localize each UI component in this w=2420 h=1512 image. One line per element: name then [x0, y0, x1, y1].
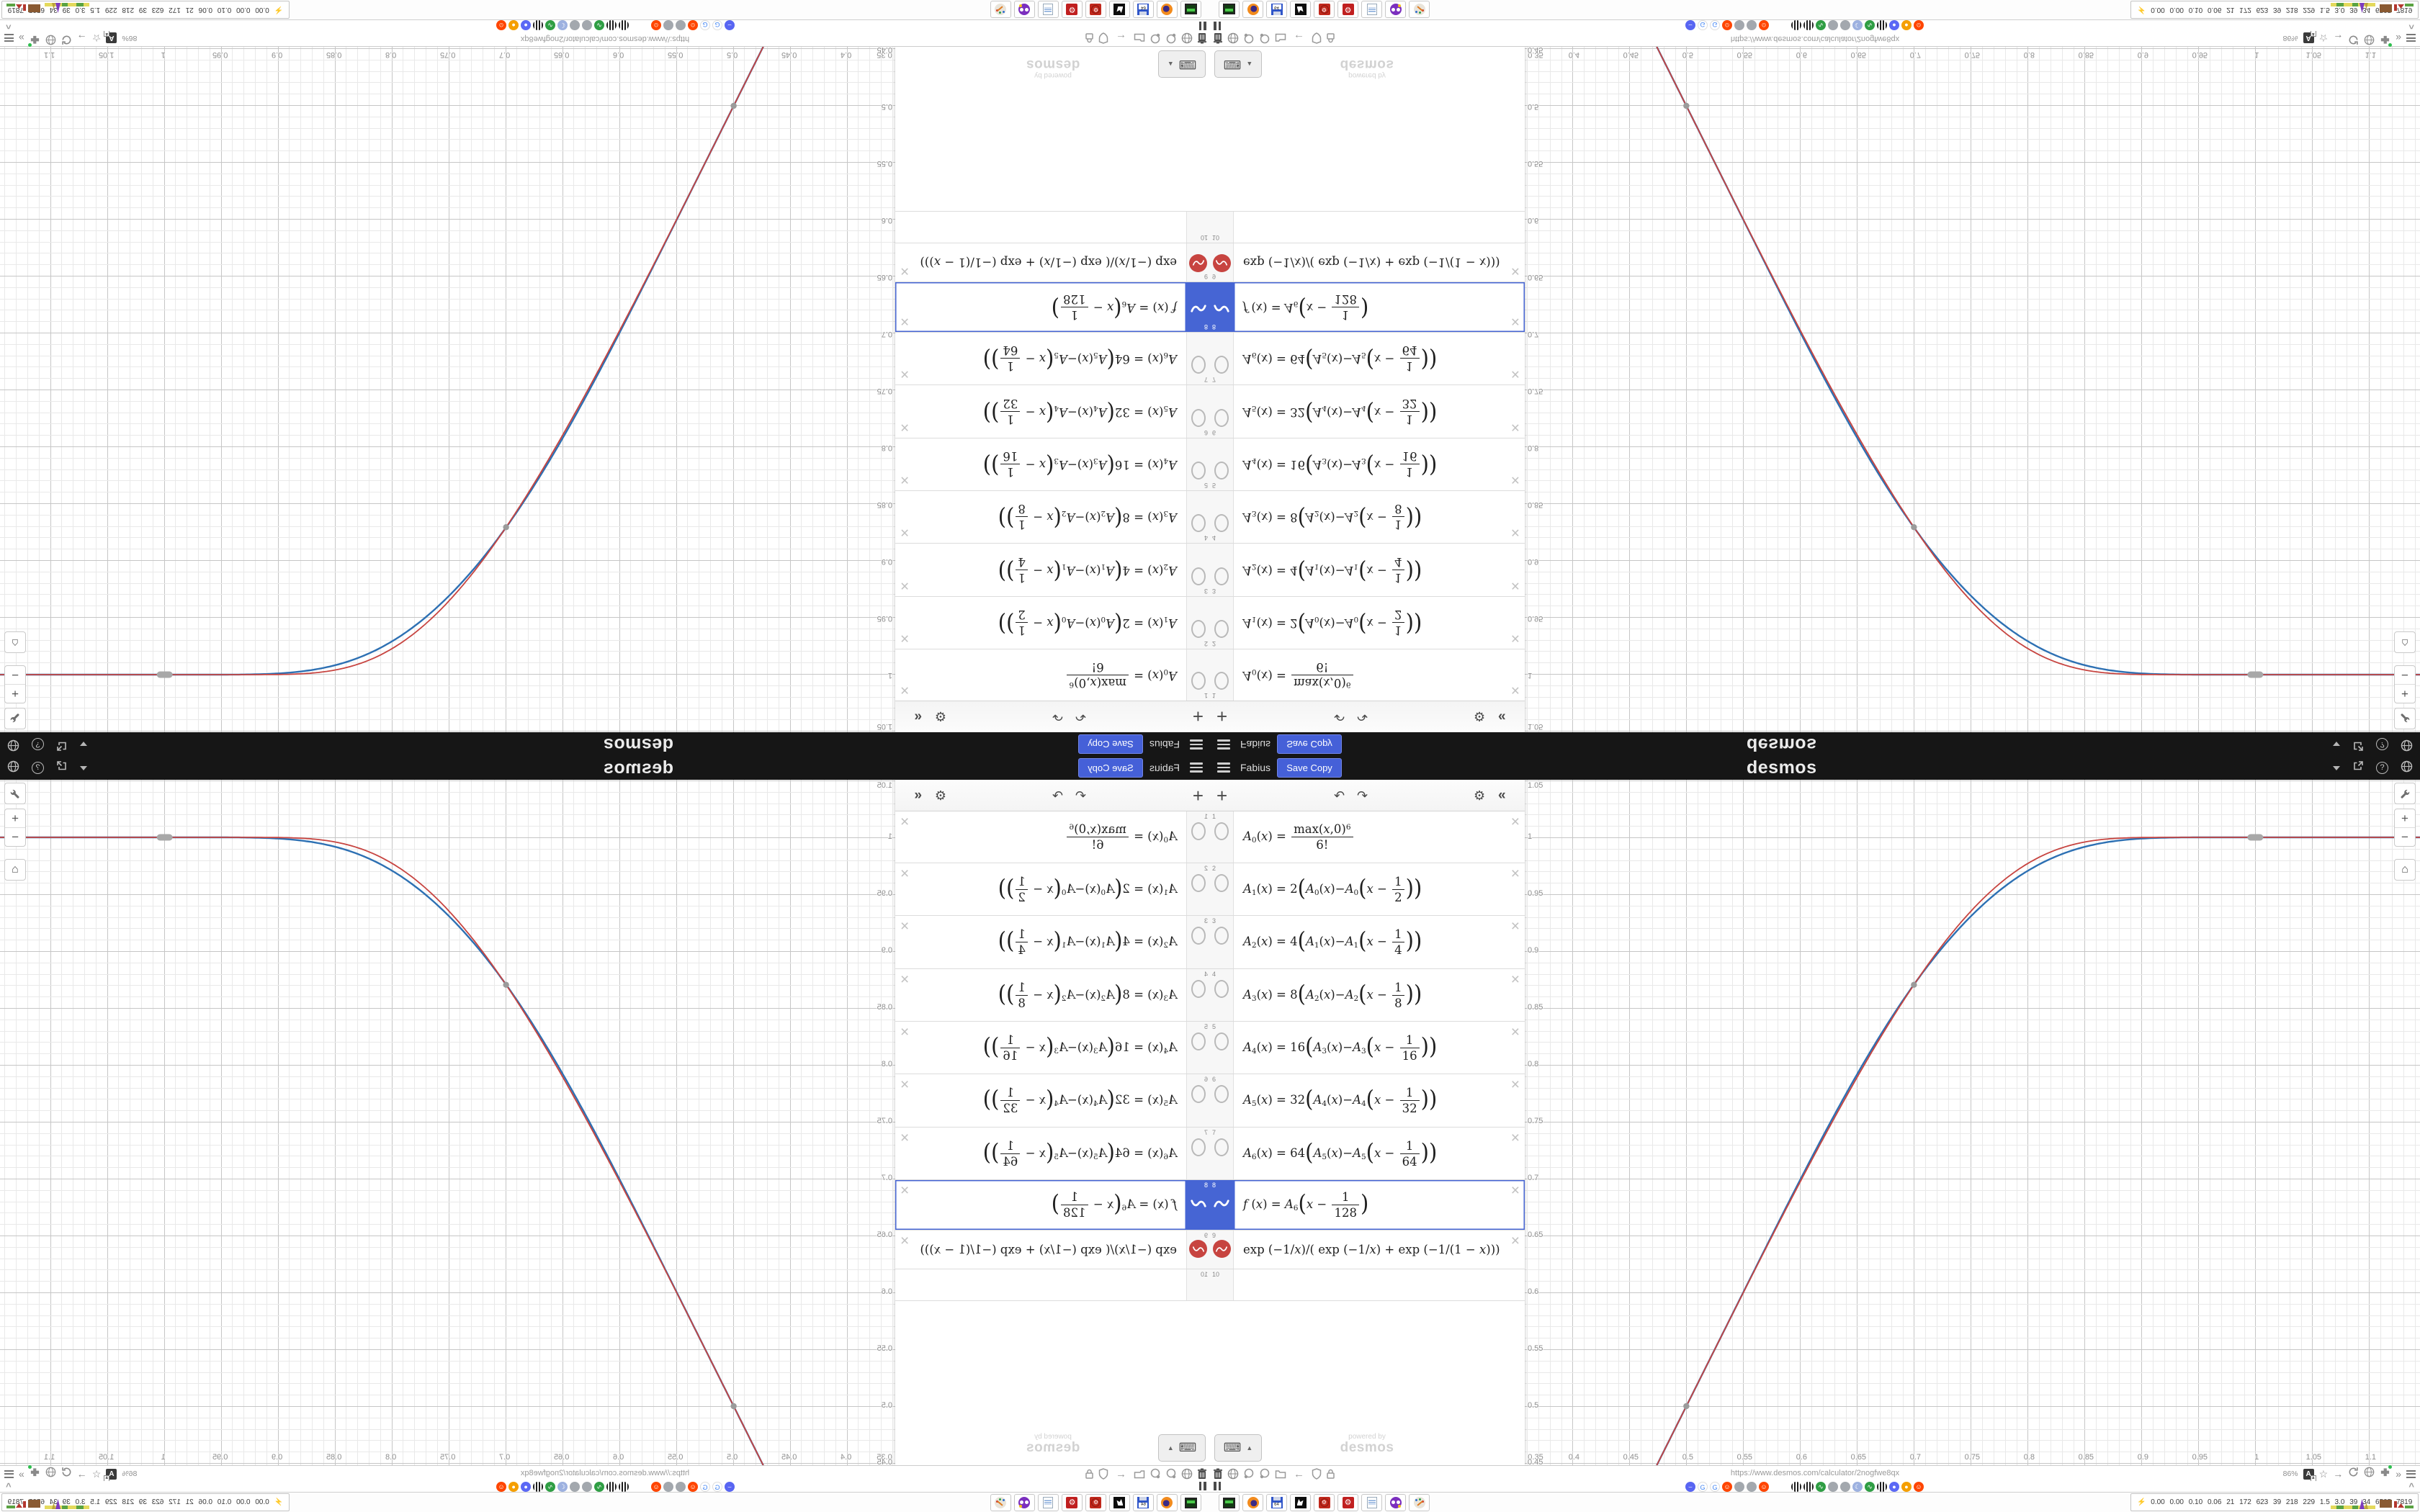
expression-row-2[interactable]: 2A1(x) = 2(A0(x)−A0(x − 12))×: [1210, 596, 1525, 649]
row-gutter[interactable]: 3: [1210, 544, 1234, 596]
expression-content[interactable]: A2(x) = 4(A1(x)−A1(x − 14))×: [1234, 916, 1525, 968]
taskbar-app-terminal[interactable]: [1180, 1494, 1201, 1511]
taskbar-app-red-emblem[interactable]: ⚙: [1314, 1494, 1335, 1511]
undo-icon[interactable]: ↶: [1334, 780, 1345, 811]
overflow-chevrons-icon[interactable]: »: [2396, 1469, 2401, 1479]
hidden-curve-toggle-icon[interactable]: [1214, 672, 1229, 690]
share-icon[interactable]: [56, 760, 68, 775]
page-zoom-level[interactable]: 86%: [2283, 34, 2298, 42]
row-gutter[interactable]: 7: [1210, 333, 1234, 384]
expression-row-2[interactable]: 2A1(x) = 2(A0(x)−A0(x − 12))×: [1210, 863, 1525, 916]
hidden-curve-toggle-icon[interactable]: [1191, 1138, 1206, 1156]
tab-favicon-animal[interactable]: [663, 1482, 673, 1492]
language-globe-icon[interactable]: [7, 760, 19, 776]
expression-content[interactable]: A3(x) = 8(A2(x)−A2(x − 18))×: [895, 969, 1186, 1021]
curve-fabius-approx[interactable]: [1646, 837, 2420, 1465]
expand-caret-icon[interactable]: ^: [2408, 1481, 2414, 1492]
reload-icon[interactable]: [2348, 31, 2359, 45]
add-expression-icon[interactable]: +: [1193, 780, 1204, 811]
graph-point[interactable]: [1683, 1403, 1689, 1409]
page-zoom-level[interactable]: 86%: [122, 1470, 137, 1478]
taskbar-app-black-cat[interactable]: [1109, 1494, 1130, 1511]
account-caret-icon[interactable]: [2333, 766, 2340, 770]
row-gutter[interactable]: 8: [1210, 282, 1234, 332]
tab-favicon-chat[interactable]: ●: [1889, 21, 1899, 31]
expression-row-5[interactable]: 5A4(x) = 16(A3(x)−A3(x − 116))×: [895, 438, 1210, 490]
tab-favicon-discord[interactable]: ⌣: [1685, 1482, 1695, 1492]
delete-expression-icon[interactable]: ×: [900, 420, 909, 435]
menu-hamburger-icon[interactable]: [1190, 762, 1203, 773]
delete-expression-icon[interactable]: ×: [900, 1233, 909, 1248]
expression-content[interactable]: [1234, 1269, 1525, 1300]
tab-favicon-google[interactable]: G: [700, 21, 710, 31]
help-icon[interactable]: ?: [32, 762, 44, 774]
expression-row-1[interactable]: 1A0(x) = max(x,0)66!×: [1210, 649, 1525, 701]
taskbar-app-black-cat[interactable]: [1290, 1494, 1311, 1511]
help-icon[interactable]: ?: [32, 738, 44, 750]
undo-icon[interactable]: ↶: [1075, 780, 1086, 811]
expression-content[interactable]: A0(x) = max(x,0)66!×: [1234, 811, 1525, 863]
row-gutter[interactable]: 2: [1186, 597, 1210, 649]
tab-favicon-animal[interactable]: [1840, 1482, 1850, 1492]
expression-content[interactable]: A3(x) = 8(A2(x)−A2(x − 18))×: [895, 491, 1186, 543]
graph-point[interactable]: [1911, 524, 1917, 530]
tab-favicon-animal[interactable]: [1828, 1482, 1838, 1492]
red-curve-icon[interactable]: [1190, 254, 1208, 272]
delete-expression-icon[interactable]: ×: [900, 1077, 909, 1092]
hidden-curve-toggle-icon[interactable]: [1191, 514, 1206, 532]
extension-puzzle-icon[interactable]: [30, 31, 40, 45]
tab-favicon-chat[interactable]: ●: [521, 1482, 531, 1492]
expression-content[interactable]: A2(x) = 4(A1(x)−A1(x − 14))×: [895, 916, 1186, 968]
tab-favicon-reddit[interactable]: ☺: [496, 1482, 506, 1492]
expression-content[interactable]: [895, 212, 1186, 243]
expression-row-3[interactable]: 3A2(x) = 4(A1(x)−A1(x − 14))×: [895, 543, 1210, 596]
pause-button[interactable]: [1199, 1482, 1206, 1490]
overflow-chevrons-icon[interactable]: »: [19, 1469, 24, 1479]
redo-icon[interactable]: ↷: [1052, 780, 1063, 811]
expression-content[interactable]: A1(x) = 2(A0(x)−A0(x − 12))×: [895, 863, 1186, 915]
delete-expression-icon[interactable]: ×: [1511, 578, 1520, 593]
redo-icon[interactable]: ↷: [1357, 701, 1368, 732]
hidden-curve-toggle-icon[interactable]: [1214, 1138, 1229, 1156]
tab-favicon-barrel[interactable]: [619, 1482, 629, 1492]
tab-favicon-planet[interactable]: ☾: [1852, 21, 1863, 31]
row-gutter[interactable]: 4: [1186, 969, 1210, 1021]
hidden-curve-toggle-icon[interactable]: [1191, 822, 1206, 840]
delete-expression-icon[interactable]: ×: [900, 1183, 909, 1198]
redo-icon[interactable]: ↷: [1052, 701, 1063, 732]
help-icon[interactable]: ?: [2376, 738, 2388, 750]
expression-row-5[interactable]: 5A4(x) = 16(A3(x)−A3(x − 116))×: [1210, 438, 1525, 490]
drag-handle-pill[interactable]: [157, 672, 173, 678]
expression-content[interactable]: A4(x) = 16(A3(x)−A3(x − 116))×: [895, 1022, 1186, 1074]
hidden-curve-toggle-icon[interactable]: [1191, 1032, 1206, 1050]
red-curve-icon[interactable]: [1213, 254, 1231, 272]
add-expression-icon[interactable]: +: [1216, 780, 1227, 811]
expression-row-10[interactable]: 10: [1210, 1269, 1525, 1301]
tab-favicon-animal[interactable]: [570, 1482, 580, 1492]
graph-paper[interactable]: 0.350.40.450.50.550.60.650.70.750.80.850…: [1525, 47, 2420, 732]
tab-favicon-sun[interactable]: ●: [508, 21, 519, 31]
delete-expression-icon[interactable]: ×: [900, 683, 909, 698]
expression-content[interactable]: A0(x) = max(x,0)66!×: [895, 649, 1186, 701]
delete-expression-icon[interactable]: ×: [1511, 972, 1520, 987]
delete-expression-icon[interactable]: ×: [1511, 1130, 1520, 1146]
delete-expression-icon[interactable]: ×: [1511, 420, 1520, 435]
expression-content[interactable]: A1(x) = 2(A0(x)−A0(x − 12))×: [1234, 597, 1525, 649]
taskbar-app-palette[interactable]: [990, 1494, 1011, 1511]
expression-content[interactable]: A0(x) = max(x,0)66!×: [895, 811, 1186, 863]
save-copy-button[interactable]: Save Copy: [1078, 734, 1143, 754]
expression-content[interactable]: A3(x) = 8(A2(x)−A2(x − 18))×: [1234, 491, 1525, 543]
graph-point[interactable]: [1911, 982, 1917, 988]
zoom-in-button[interactable]: +: [5, 809, 25, 828]
zoom-out-button[interactable]: −: [5, 828, 25, 847]
expression-row-1[interactable]: 1A0(x) = max(x,0)66!×: [1210, 811, 1525, 863]
expression-row-3[interactable]: 3A2(x) = 4(A1(x)−A1(x − 14))×: [1210, 916, 1525, 969]
tab-favicon-barrel[interactable]: [1877, 21, 1887, 31]
pause-button[interactable]: [1214, 22, 1221, 30]
hidden-curve-toggle-icon[interactable]: [1214, 567, 1229, 585]
taskbar-app-floppy-64[interactable]: 64: [1133, 1, 1154, 18]
red-curve-icon[interactable]: [1190, 1240, 1208, 1258]
row-gutter[interactable]: 6: [1186, 385, 1210, 438]
graph-point[interactable]: [730, 1403, 736, 1409]
tab-favicon-google[interactable]: G: [1710, 21, 1720, 31]
delete-expression-icon[interactable]: ×: [1511, 366, 1520, 382]
collapse-panel-icon[interactable]: «: [1498, 701, 1506, 732]
overflow-chevrons-icon[interactable]: »: [2396, 33, 2401, 43]
tab-favicon-animal[interactable]: [1840, 21, 1850, 31]
tab-favicon-sun[interactable]: ●: [508, 1482, 519, 1492]
taskbar-app-purple-cat[interactable]: [1014, 1494, 1035, 1511]
zoom-in-button[interactable]: +: [5, 684, 25, 703]
graph-point[interactable]: [1683, 103, 1689, 109]
keyboard-toggle-button[interactable]: ⌨ ▲: [1214, 50, 1262, 78]
forward-arrow-icon[interactable]: →: [77, 33, 87, 43]
translate-icon[interactable]: Aa: [106, 1469, 117, 1480]
tab-favicon-barrel[interactable]: [606, 21, 617, 31]
tab-favicon-google[interactable]: G: [712, 21, 722, 31]
row-gutter[interactable]: 1: [1186, 811, 1210, 863]
forward-arrow-icon[interactable]: →: [77, 1469, 87, 1479]
graph-point[interactable]: [503, 524, 508, 530]
tab-favicon-reddit[interactable]: ☺: [651, 1482, 661, 1492]
tab-favicon-desmos-green[interactable]: ∿: [1865, 21, 1875, 31]
expression-row-6[interactable]: 6A5(x) = 32(A4(x)−A4(x − 132))×: [1210, 384, 1525, 438]
add-expression-icon[interactable]: +: [1193, 701, 1204, 732]
tab-favicon-barrel[interactable]: [619, 21, 629, 31]
tab-favicon-sun[interactable]: ●: [1901, 21, 1912, 31]
taskbar-app-black-cat[interactable]: [1290, 1, 1311, 18]
save-copy-button[interactable]: Save Copy: [1277, 758, 1342, 778]
row-gutter[interactable]: 8: [1186, 282, 1210, 332]
delete-expression-icon[interactable]: ×: [900, 264, 909, 279]
collapse-panel-icon[interactable]: «: [914, 701, 922, 732]
expression-content[interactable]: f (x) = A6(x − 1128)×: [1234, 282, 1525, 332]
bookmark-star-icon[interactable]: ☆: [2319, 1469, 2329, 1479]
help-icon[interactable]: ?: [2376, 762, 2388, 774]
tab-favicon-desmos-green[interactable]: ∿: [594, 21, 604, 31]
page-zoom-level[interactable]: 86%: [122, 34, 137, 42]
tab-favicon-animal[interactable]: [663, 21, 673, 31]
tab-favicon-desmos-green[interactable]: ∿: [1816, 1482, 1826, 1492]
graph-paper[interactable]: 0.350.40.450.50.550.60.650.70.750.80.850…: [1525, 780, 2420, 1465]
expression-row-9[interactable]: 9exp (−1/x)/( exp (−1/x) + exp (−1/(1 − …: [1210, 1230, 1525, 1269]
tab-favicon-reddit[interactable]: ☺: [1759, 21, 1769, 31]
expression-content[interactable]: A2(x) = 4(A1(x)−A1(x − 14))×: [895, 544, 1186, 596]
tab-favicon-animal[interactable]: [676, 1482, 686, 1492]
forward-arrow-icon[interactable]: →: [2333, 1469, 2343, 1479]
delete-expression-icon[interactable]: ×: [1511, 264, 1520, 279]
tab-favicon-barrel[interactable]: [1877, 1482, 1887, 1492]
expression-row-7[interactable]: 7A6(x) = 64(A5(x)−A5(x − 164))×: [1210, 332, 1525, 384]
share-icon[interactable]: [2352, 737, 2364, 752]
tab-favicon-planet[interactable]: ☾: [557, 21, 568, 31]
default-zoom-home-button[interactable]: ⌂: [4, 859, 26, 881]
hidden-curve-toggle-icon[interactable]: [1214, 1085, 1229, 1103]
expression-content[interactable]: f (x) = A6(x − 1128)×: [895, 1180, 1186, 1230]
expression-row-3[interactable]: 3A2(x) = 4(A1(x)−A1(x − 14))×: [1210, 543, 1525, 596]
expression-content[interactable]: [1234, 212, 1525, 243]
taskbar-app-palette[interactable]: [1409, 1494, 1430, 1511]
tab-favicon-desmos-green[interactable]: ∿: [1865, 1482, 1875, 1492]
expression-content[interactable]: A2(x) = 4(A1(x)−A1(x − 14))×: [1234, 544, 1525, 596]
taskbar-app-red-emblem[interactable]: ⚙: [1085, 1494, 1106, 1511]
language-globe-icon[interactable]: [2401, 737, 2413, 752]
expression-row-8[interactable]: 8f (x) = A6(x − 1128)×: [1210, 1180, 1525, 1230]
taskbar-app-floppy-64[interactable]: 64: [1266, 1, 1287, 18]
row-gutter[interactable]: 9: [1210, 1230, 1234, 1269]
taskbar-app-notepad[interactable]: [1361, 1494, 1382, 1511]
tab-favicon-animal[interactable]: [1734, 21, 1744, 31]
tab-favicon-barrel[interactable]: [606, 1482, 617, 1492]
hidden-curve-toggle-icon[interactable]: [1191, 409, 1206, 427]
overflow-chevrons-icon[interactable]: »: [19, 33, 24, 43]
expression-row-5[interactable]: 5A4(x) = 16(A3(x)−A3(x − 116))×: [895, 1022, 1210, 1074]
expression-row-9[interactable]: 9exp (−1/x)/( exp (−1/x) + exp (−1/(1 − …: [895, 1230, 1210, 1269]
tab-favicon-chat[interactable]: ●: [1889, 1482, 1899, 1492]
graph-paper[interactable]: 0.350.40.450.50.550.60.650.70.750.80.850…: [0, 780, 895, 1465]
delete-expression-icon[interactable]: ×: [1511, 919, 1520, 934]
tab-favicon-reddit[interactable]: ☺: [651, 21, 661, 31]
hidden-curve-toggle-icon[interactable]: [1214, 822, 1229, 840]
taskbar-app-red-gear[interactable]: ⚙: [1337, 1, 1358, 18]
delete-expression-icon[interactable]: ×: [1511, 1183, 1520, 1198]
translate-icon[interactable]: Aa: [2303, 33, 2314, 44]
translate-icon[interactable]: Aa: [2303, 1469, 2314, 1480]
hidden-curve-toggle-icon[interactable]: [1214, 980, 1229, 998]
row-gutter[interactable]: 5: [1186, 1022, 1210, 1074]
hidden-curve-toggle-icon[interactable]: [1214, 1032, 1229, 1050]
expression-row-7[interactable]: 7A6(x) = 64(A5(x)−A5(x − 164))×: [895, 1128, 1210, 1180]
taskbar-app-palette[interactable]: [1409, 1, 1430, 18]
taskbar-app-firefox[interactable]: [1157, 1, 1178, 18]
expression-row-1[interactable]: 1A0(x) = max(x,0)66!×: [895, 649, 1210, 701]
tab-favicon-reddit[interactable]: ☺: [1722, 21, 1732, 31]
expression-content[interactable]: A5(x) = 32(A4(x)−A4(x − 132))×: [895, 1074, 1186, 1127]
expand-caret-icon[interactable]: ^: [2408, 20, 2414, 31]
bookmark-star-icon[interactable]: ☆: [92, 1469, 102, 1479]
account-caret-icon[interactable]: [80, 742, 87, 747]
menu-hamburger-icon[interactable]: [1217, 739, 1230, 750]
curve-fabius-approx[interactable]: [0, 837, 774, 1465]
expression-content[interactable]: exp (−1/x)/( exp (−1/x) + exp (−1/(1 − x…: [1234, 1230, 1525, 1269]
zoom-out-button[interactable]: −: [5, 665, 25, 684]
redo-icon[interactable]: ↷: [1357, 780, 1368, 811]
keyboard-toggle-button[interactable]: ⌨ ▲: [1214, 1434, 1262, 1462]
expression-content[interactable]: A4(x) = 16(A3(x)−A3(x − 116))×: [1234, 1022, 1525, 1074]
curve-exp-smoothstep[interactable]: [0, 837, 774, 1465]
delete-expression-icon[interactable]: ×: [900, 525, 909, 540]
tab-favicon-discord[interactable]: ⌣: [725, 1482, 735, 1492]
expression-row-2[interactable]: 2A1(x) = 2(A0(x)−A0(x − 12))×: [895, 596, 1210, 649]
undo-icon[interactable]: ↶: [1334, 701, 1345, 732]
row-gutter[interactable]: 7: [1210, 1128, 1234, 1179]
hidden-curve-toggle-icon[interactable]: [1214, 874, 1229, 892]
bookmark-star-icon[interactable]: ☆: [92, 33, 102, 43]
delete-expression-icon[interactable]: ×: [900, 1025, 909, 1040]
share-icon[interactable]: [56, 737, 68, 752]
delete-expression-icon[interactable]: ×: [1511, 866, 1520, 881]
delete-expression-icon[interactable]: ×: [1511, 525, 1520, 540]
row-gutter[interactable]: 1: [1210, 649, 1234, 701]
expression-content[interactable]: A3(x) = 8(A2(x)−A2(x − 18))×: [1234, 969, 1525, 1021]
delete-expression-icon[interactable]: ×: [1511, 631, 1520, 646]
expression-row-9[interactable]: 9exp (−1/x)/( exp (−1/x) + exp (−1/(1 − …: [1210, 243, 1525, 282]
taskbar-app-red-emblem[interactable]: ⚙: [1085, 1, 1106, 18]
row-gutter[interactable]: 10: [1186, 1269, 1210, 1300]
expression-content[interactable]: A6(x) = 64(A5(x)−A5(x − 164))×: [1234, 1128, 1525, 1179]
taskbar-app-purple-cat[interactable]: [1385, 1494, 1406, 1511]
delete-expression-icon[interactable]: ×: [900, 972, 909, 987]
tab-favicon-google[interactable]: G: [700, 1482, 710, 1492]
taskbar-app-purple-cat[interactable]: [1014, 1, 1035, 18]
tab-favicon-reddit[interactable]: ☺: [1759, 1482, 1769, 1492]
taskbar-app-notepad[interactable]: [1038, 1494, 1059, 1511]
graph-point[interactable]: [503, 982, 508, 988]
hidden-curve-toggle-icon[interactable]: [1191, 1085, 1206, 1103]
delete-expression-icon[interactable]: ×: [1511, 314, 1520, 329]
delete-expression-icon[interactable]: ×: [900, 578, 909, 593]
graph-settings-wrench-button[interactable]: [2394, 783, 2416, 804]
hidden-curve-toggle-icon[interactable]: [1191, 356, 1206, 374]
site-globe-icon[interactable]: [2364, 1467, 2375, 1481]
tab-favicon-discord[interactable]: ⌣: [1685, 21, 1695, 31]
expression-row-5[interactable]: 5A4(x) = 16(A3(x)−A3(x − 116))×: [1210, 1022, 1525, 1074]
extension-puzzle-icon[interactable]: [2380, 1467, 2390, 1481]
tab-favicon-desmos-green[interactable]: ∿: [545, 1482, 555, 1492]
expand-caret-icon[interactable]: ^: [6, 20, 12, 31]
tab-favicon-discord[interactable]: ⌣: [725, 21, 735, 31]
tab-favicon-google[interactable]: G: [1710, 1482, 1720, 1492]
expression-content[interactable]: A6(x) = 64(A5(x)−A5(x − 164))×: [895, 1128, 1186, 1179]
taskbar-app-palette[interactable]: [990, 1, 1011, 18]
tab-favicon-reddit[interactable]: ☺: [1722, 1482, 1732, 1492]
collapse-panel-icon[interactable]: «: [914, 780, 922, 811]
hidden-curve-toggle-icon[interactable]: [1191, 980, 1206, 998]
hidden-curve-toggle-icon[interactable]: [1214, 356, 1229, 374]
expression-row-9[interactable]: 9exp (−1/x)/( exp (−1/x) + exp (−1/(1 − …: [895, 243, 1210, 282]
curve-fabius-approx[interactable]: [1646, 47, 2420, 675]
language-globe-icon[interactable]: [2401, 760, 2413, 776]
expression-row-2[interactable]: 2A1(x) = 2(A0(x)−A0(x − 12))×: [895, 863, 1210, 916]
delete-expression-icon[interactable]: ×: [900, 472, 909, 487]
keyboard-toggle-button[interactable]: ⌨ ▲: [1158, 1434, 1206, 1462]
row-gutter[interactable]: 5: [1186, 438, 1210, 490]
expression-content[interactable]: f (x) = A6(x − 1128)×: [1234, 1180, 1525, 1230]
reload-icon[interactable]: [61, 1467, 72, 1481]
expression-content[interactable]: exp (−1/x)/( exp (−1/x) + exp (−1/(1 − x…: [895, 243, 1186, 282]
graph-settings-wrench-button[interactable]: [2394, 708, 2416, 729]
tab-favicon-reddit[interactable]: ☺: [688, 1482, 698, 1492]
delete-expression-icon[interactable]: ×: [1511, 472, 1520, 487]
blue-curve-icon[interactable]: [1213, 1199, 1230, 1212]
expression-content[interactable]: A5(x) = 32(A4(x)−A4(x − 132))×: [1234, 1074, 1525, 1127]
taskbar-app-black-cat[interactable]: [1109, 1, 1130, 18]
tab-favicon-google[interactable]: G: [1698, 1482, 1708, 1492]
graph-point[interactable]: [730, 103, 736, 109]
extension-puzzle-icon[interactable]: [2380, 31, 2390, 45]
bookmark-star-icon[interactable]: ☆: [2319, 33, 2329, 43]
expression-row-6[interactable]: 6A5(x) = 32(A4(x)−A4(x − 132))×: [1210, 1074, 1525, 1128]
expression-row-1[interactable]: 1A0(x) = max(x,0)66!×: [895, 811, 1210, 863]
site-globe-icon[interactable]: [45, 31, 56, 45]
hidden-curve-toggle-icon[interactable]: [1191, 874, 1206, 892]
taskbar-app-red-gear[interactable]: ⚙: [1062, 1, 1083, 18]
taskbar-app-notepad[interactable]: [1038, 1, 1059, 18]
reload-icon[interactable]: [2348, 1467, 2359, 1481]
row-gutter[interactable]: 5: [1210, 438, 1234, 490]
expression-row-3[interactable]: 3A2(x) = 4(A1(x)−A1(x − 14))×: [895, 916, 1210, 969]
tab-favicon-animal[interactable]: [582, 1482, 592, 1492]
tab-favicon-barrel[interactable]: [533, 1482, 543, 1492]
row-gutter[interactable]: 2: [1210, 863, 1234, 915]
tab-favicon-desmos-green[interactable]: ∿: [594, 1482, 604, 1492]
expression-content[interactable]: f (x) = A6(x − 1128)×: [895, 282, 1186, 332]
hidden-curve-toggle-icon[interactable]: [1214, 409, 1229, 427]
row-gutter[interactable]: 2: [1186, 863, 1210, 915]
expression-content[interactable]: A6(x) = 64(A5(x)−A5(x − 164))×: [1234, 333, 1525, 384]
taskbar-app-firefox[interactable]: [1157, 1494, 1178, 1511]
account-caret-icon[interactable]: [2333, 742, 2340, 747]
default-zoom-home-button[interactable]: ⌂: [2394, 859, 2416, 881]
browser-menu-icon[interactable]: [4, 32, 14, 44]
delete-expression-icon[interactable]: ×: [900, 314, 909, 329]
row-gutter[interactable]: 3: [1186, 544, 1210, 596]
tab-favicon-reddit[interactable]: ☺: [688, 21, 698, 31]
row-gutter[interactable]: 7: [1186, 333, 1210, 384]
expression-content[interactable]: A1(x) = 2(A0(x)−A0(x − 12))×: [1234, 863, 1525, 915]
page-zoom-level[interactable]: 86%: [2283, 1470, 2298, 1478]
red-curve-icon[interactable]: [1213, 1240, 1231, 1258]
browser-menu-icon[interactable]: [2406, 1468, 2416, 1480]
tab-favicon-animal[interactable]: [676, 21, 686, 31]
hidden-curve-toggle-icon[interactable]: [1191, 620, 1206, 638]
expression-content[interactable]: A4(x) = 16(A3(x)−A3(x − 116))×: [895, 438, 1186, 490]
tab-favicon-desmos-green[interactable]: ∿: [545, 21, 555, 31]
row-gutter[interactable]: 9: [1186, 243, 1210, 282]
delete-expression-icon[interactable]: ×: [1511, 1025, 1520, 1040]
taskbar-app-floppy-64[interactable]: 64: [1266, 1494, 1287, 1511]
hidden-curve-toggle-icon[interactable]: [1214, 462, 1229, 480]
browser-menu-icon[interactable]: [2406, 32, 2416, 44]
account-caret-icon[interactable]: [80, 766, 87, 770]
row-gutter[interactable]: 9: [1186, 1230, 1210, 1269]
expression-row-7[interactable]: 7A6(x) = 64(A5(x)−A5(x − 164))×: [895, 332, 1210, 384]
forward-arrow-icon[interactable]: →: [2333, 33, 2343, 43]
